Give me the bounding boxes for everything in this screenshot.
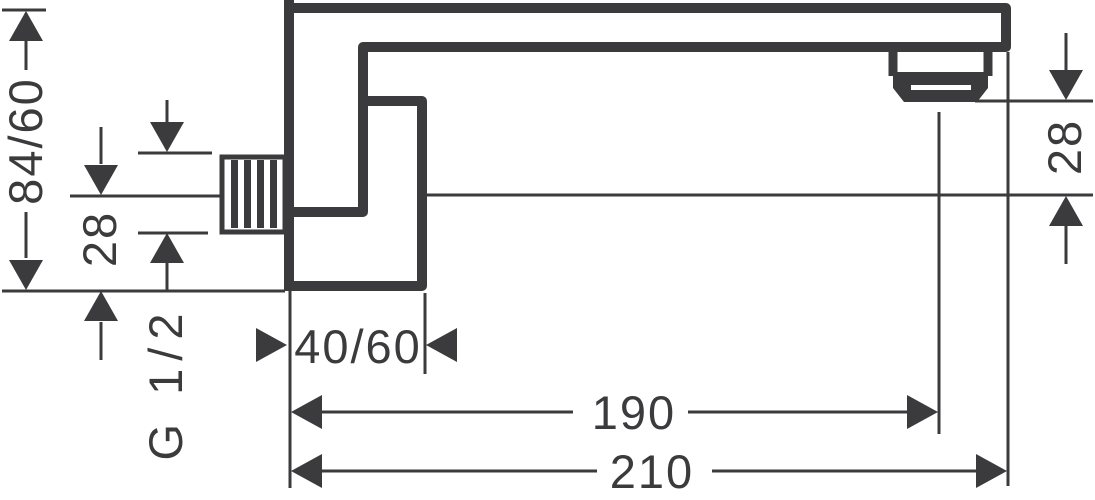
drawing-canvas: 84/60 28 G 1/2 40/60 190 210 28	[0, 0, 1095, 500]
arrow-up-icon	[9, 11, 43, 41]
dim-label-thread: G 1/2	[139, 306, 192, 461]
arrow-down-icon	[1049, 70, 1083, 100]
nipple-thread-bar	[231, 160, 238, 228]
arrow-up-icon	[150, 233, 184, 263]
aerator-nozzle	[893, 47, 988, 102]
arrow-up-icon	[1049, 196, 1083, 226]
technical-drawing: 84/60 28 G 1/2 40/60 190 210 28	[0, 0, 1095, 500]
arrow-down-icon	[84, 165, 118, 195]
spout-drop-section	[290, 101, 422, 286]
arrow-right-icon	[976, 454, 1007, 488]
arrow-left-icon	[291, 454, 322, 488]
dim-label-aerator-to-axis: 28	[1038, 119, 1091, 175]
thread-nipple-icon	[222, 157, 285, 232]
nipple-thread-bar	[244, 160, 251, 228]
dim-label-length-overall: 210	[610, 445, 694, 498]
aerator-slit	[911, 85, 971, 90]
dim-label-overall-height: 84/60	[0, 77, 52, 205]
arrow-up-icon	[84, 291, 118, 321]
arrow-right-icon	[256, 328, 287, 362]
arrow-down-icon	[150, 122, 184, 152]
arrow-left-icon	[426, 328, 457, 362]
dim-label-plate-projection: 40/60	[294, 320, 422, 373]
spout-arm-profile	[289, 8, 1006, 212]
arrow-left-icon	[291, 395, 322, 429]
nipple-thread-bar	[257, 160, 264, 228]
spout-outline	[289, 4, 1006, 286]
dim-label-length-to-aerator: 190	[592, 386, 676, 439]
nipple-thread-bar	[270, 160, 277, 228]
arrow-down-icon	[9, 260, 43, 290]
arrow-right-icon	[907, 395, 938, 429]
dim-label-axis-to-plate-bottom: 28	[73, 211, 126, 267]
